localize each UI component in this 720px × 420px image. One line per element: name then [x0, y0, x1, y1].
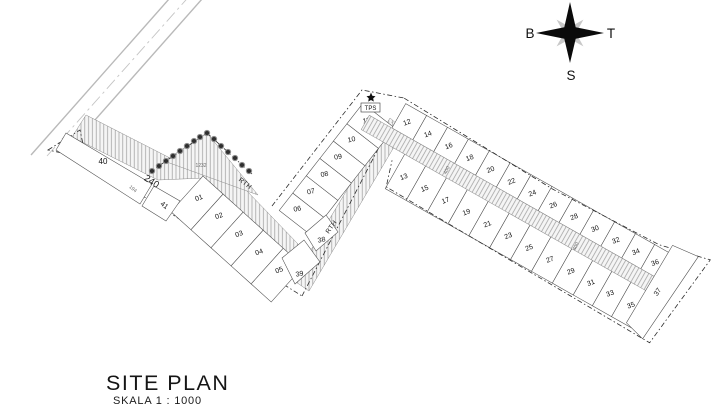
tree-icon	[218, 143, 223, 148]
compass-west-label: B	[525, 26, 534, 41]
drawing-scale: SKALA 1 : 1000	[113, 395, 202, 407]
lot-label: 40	[99, 157, 108, 166]
site-plan-canvas: 0102030405060708091011121416182022242628…	[0, 0, 720, 420]
compass-east-label: T	[607, 26, 615, 41]
tree-icon	[197, 134, 202, 139]
background	[0, 0, 720, 420]
tree-icon	[184, 143, 189, 148]
site-plan-drawing: 0102030405060708091011121416182022242628…	[0, 0, 720, 420]
tree-icon	[232, 155, 237, 160]
tree-icon	[246, 168, 251, 173]
tree-icon	[149, 168, 154, 173]
tree-icon	[177, 148, 182, 153]
compass-south-label: S	[566, 68, 575, 83]
tree-icon	[225, 149, 230, 154]
tree-icon	[170, 153, 175, 158]
tree-icon	[239, 162, 244, 167]
tps-label: TPS	[365, 106, 377, 112]
tree-icon	[204, 130, 209, 135]
tree-icon	[211, 136, 216, 141]
tree-icon	[156, 163, 161, 168]
tree-icon	[163, 158, 168, 163]
drawing-title: SITE PLAN	[106, 371, 229, 395]
tree-icon	[191, 138, 196, 143]
dim-label-1232: 1232	[195, 163, 206, 169]
